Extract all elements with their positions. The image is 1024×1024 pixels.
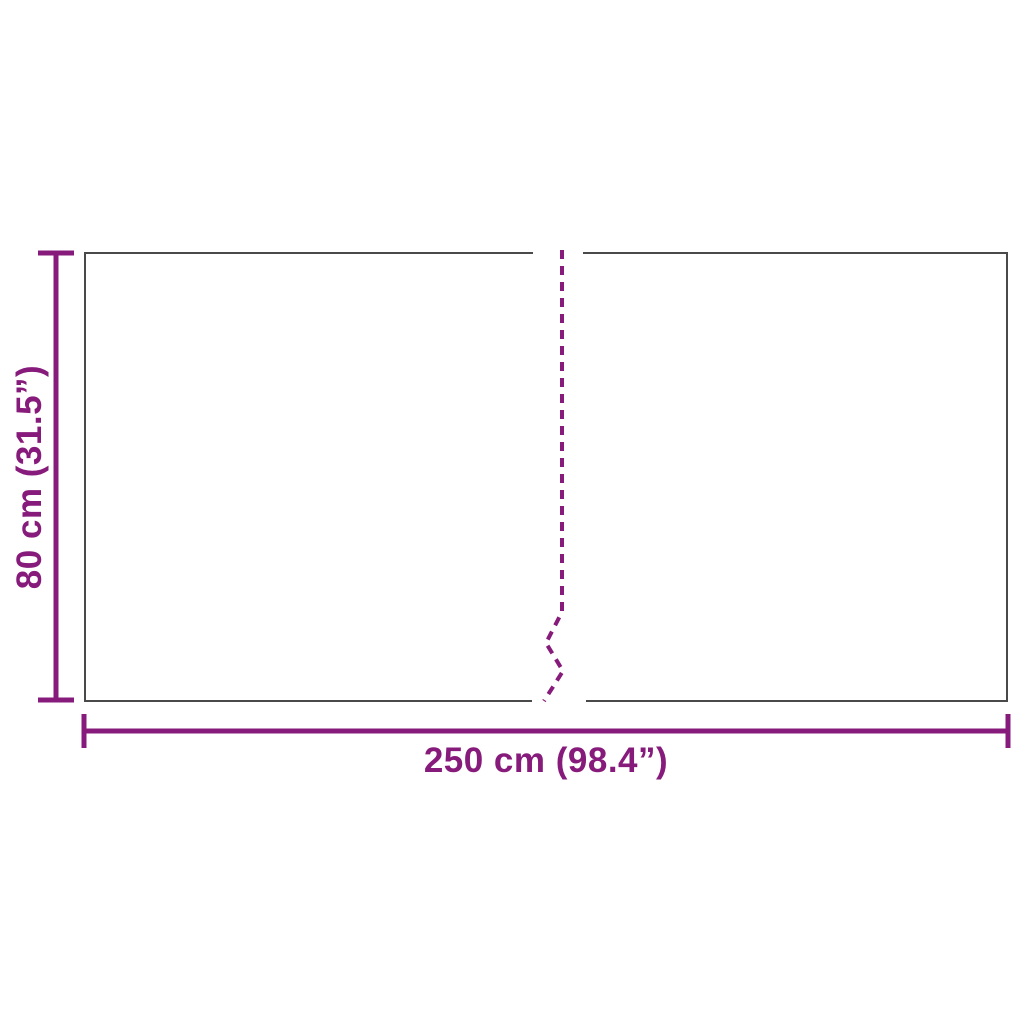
diagram-canvas — [0, 0, 1024, 1024]
width-dimension-label: 250 cm (98.4”) — [84, 741, 1008, 781]
dimension-diagram: 80 cm (31.5”) 250 cm (98.4”) — [0, 0, 1024, 1024]
panel-outline — [85, 253, 1007, 701]
height-dimension-label: 80 cm (31.5”) — [10, 365, 50, 589]
center-break-line — [544, 250, 563, 701]
